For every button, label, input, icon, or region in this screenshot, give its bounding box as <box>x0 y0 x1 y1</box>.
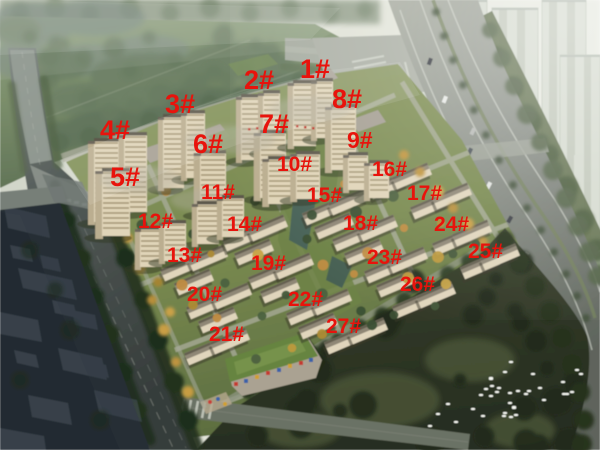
svg-text:13#: 13# <box>167 244 202 267</box>
svg-text:20#: 20# <box>187 283 222 306</box>
svg-text:21#: 21# <box>209 323 244 346</box>
svg-text:8#: 8# <box>332 84 362 114</box>
svg-text:15#: 15# <box>307 184 342 207</box>
svg-text:2#: 2# <box>244 65 274 95</box>
svg-text:16#: 16# <box>372 158 407 181</box>
svg-text:11#: 11# <box>201 181 235 204</box>
svg-text:19#: 19# <box>251 252 286 275</box>
svg-text:3#: 3# <box>165 89 195 119</box>
svg-text:7#: 7# <box>259 109 289 139</box>
svg-text:27#: 27# <box>326 315 361 338</box>
svg-text:22#: 22# <box>288 288 323 311</box>
svg-text:25#: 25# <box>468 240 503 263</box>
svg-text:4#: 4# <box>100 115 130 145</box>
svg-text:5#: 5# <box>110 162 140 192</box>
svg-text:26#: 26# <box>400 273 435 296</box>
svg-text:1#: 1# <box>300 54 330 84</box>
svg-text:14#: 14# <box>227 213 262 236</box>
svg-text:12#: 12# <box>138 210 173 233</box>
svg-text:24#: 24# <box>434 213 469 236</box>
svg-text:10#: 10# <box>277 153 312 176</box>
svg-text:18#: 18# <box>343 212 378 235</box>
svg-text:9#: 9# <box>347 127 373 153</box>
svg-text:6#: 6# <box>193 129 223 159</box>
svg-text:23#: 23# <box>367 246 402 269</box>
svg-text:17#: 17# <box>407 182 442 205</box>
